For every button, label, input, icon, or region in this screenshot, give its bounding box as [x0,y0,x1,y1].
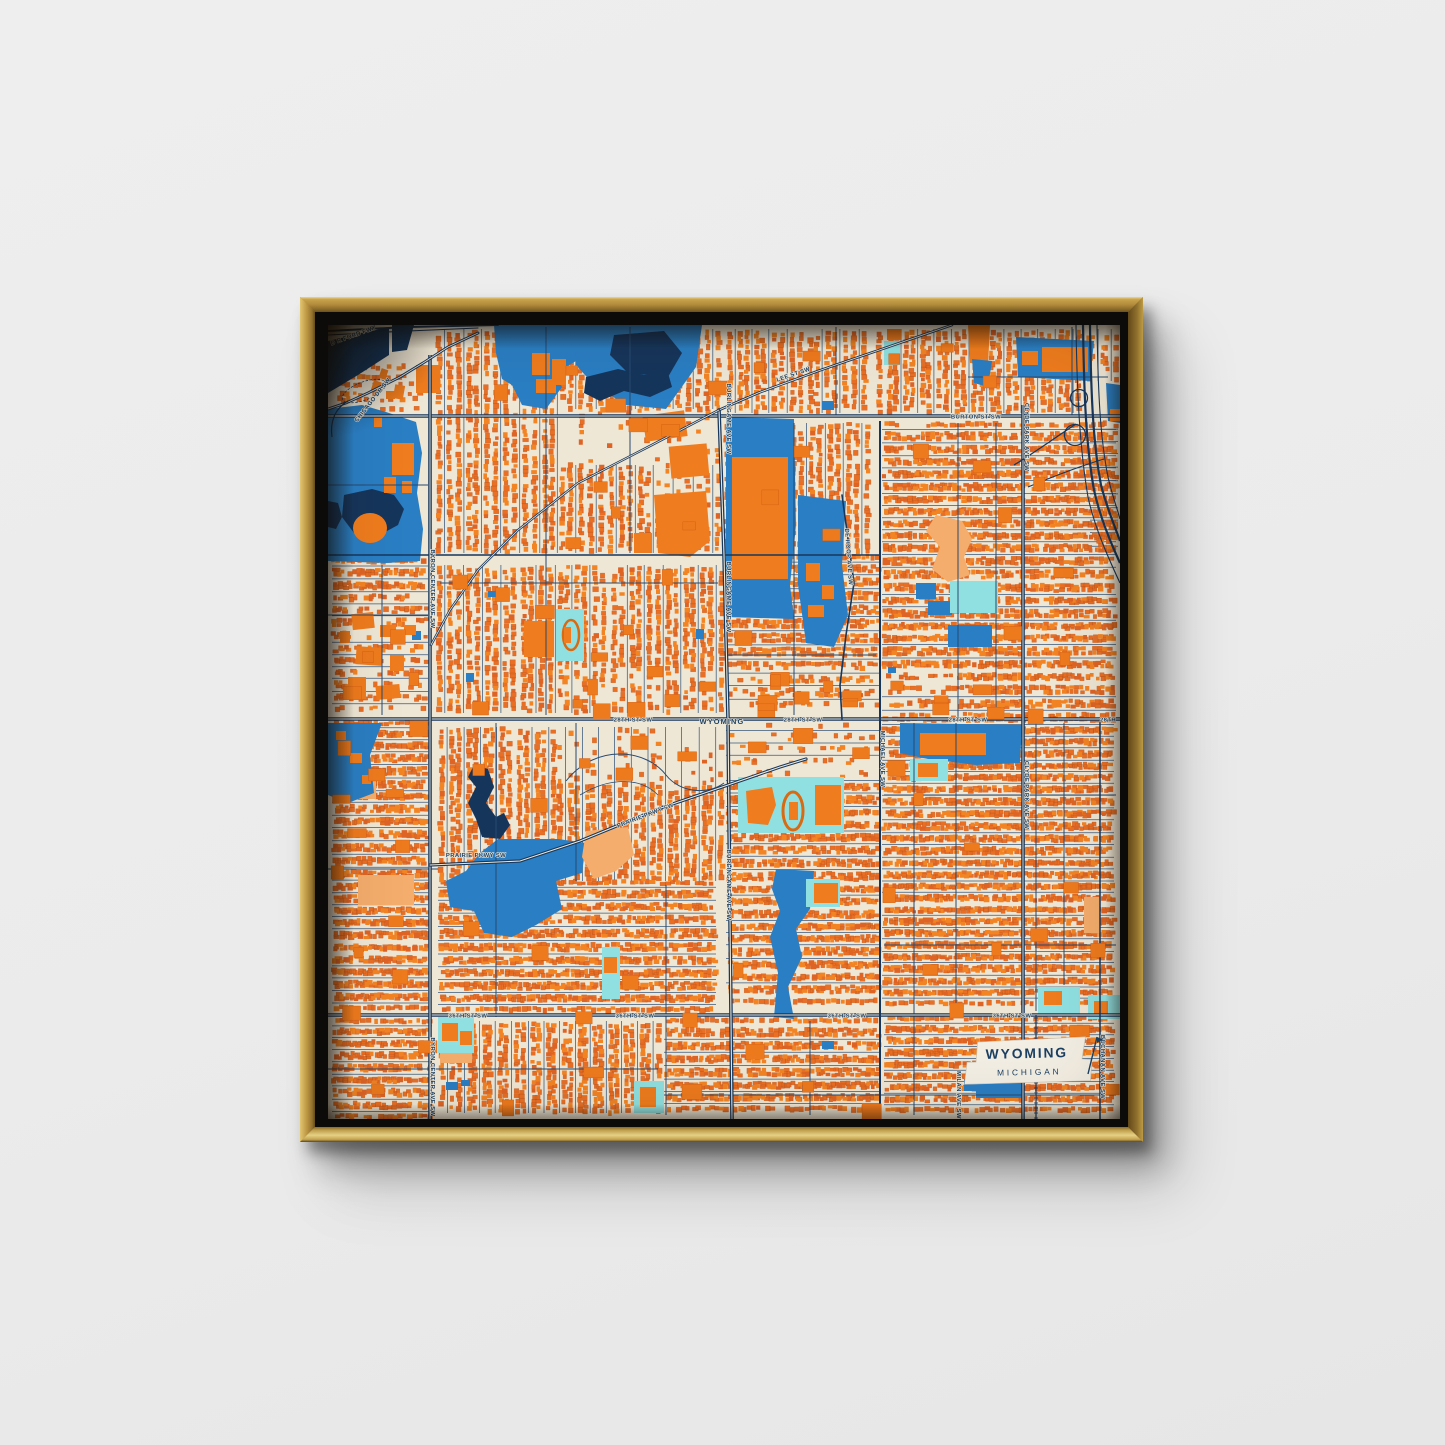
svg-text:MICHIGAN: MICHIGAN [997,1066,1061,1077]
svg-text:28TH ST SW: 28TH ST SW [949,718,988,724]
svg-text:BUCHANAN AVE SW: BUCHANAN AVE SW [1099,1035,1105,1099]
svg-text:36TH ST SW: 36TH ST SW [993,1014,1032,1020]
svg-text:PRAIRIE PKWY SW: PRAIRIE PKWY SW [446,853,506,859]
svg-text:WYOMING: WYOMING [986,1045,1069,1062]
svg-text:28TH: 28TH [1100,718,1116,724]
svg-text:BURTON ST SW: BURTON ST SW [951,415,1001,421]
svg-text:MILAN AVE SW: MILAN AVE SW [955,1071,961,1119]
svg-text:WYOMING: WYOMING [700,717,745,726]
svg-text:BURLINGAME AVE SW: BURLINGAME AVE SW [725,850,731,921]
svg-text:36TH ST SW: 36TH ST SW [828,1014,867,1020]
svg-text:28TH ST SW: 28TH ST SW [614,718,653,724]
svg-text:BYRON CENTER AVE SW: BYRON CENTER AVE SW [429,550,435,629]
svg-text:CLYDE PARK AVE SW: CLYDE PARK AVE SW [1023,403,1029,471]
svg-text:36TH ST SW: 36TH ST SW [449,1014,488,1020]
svg-text:28TH ST SW: 28TH ST SW [784,718,823,724]
svg-text:36TH ST SW: 36TH ST SW [616,1014,655,1020]
svg-text:CLYDE PARK AVE SW: CLYDE PARK AVE SW [1023,761,1029,829]
svg-text:MICHAEL AVE SW: MICHAEL AVE SW [879,731,885,788]
svg-text:BYRON CENTER AVE SW: BYRON CENTER AVE SW [429,1038,435,1117]
svg-text:BURLINGAME AVE SW: BURLINGAME AVE SW [725,384,731,455]
svg-text:BURLINGAME AVE SW: BURLINGAME AVE SW [725,562,731,633]
